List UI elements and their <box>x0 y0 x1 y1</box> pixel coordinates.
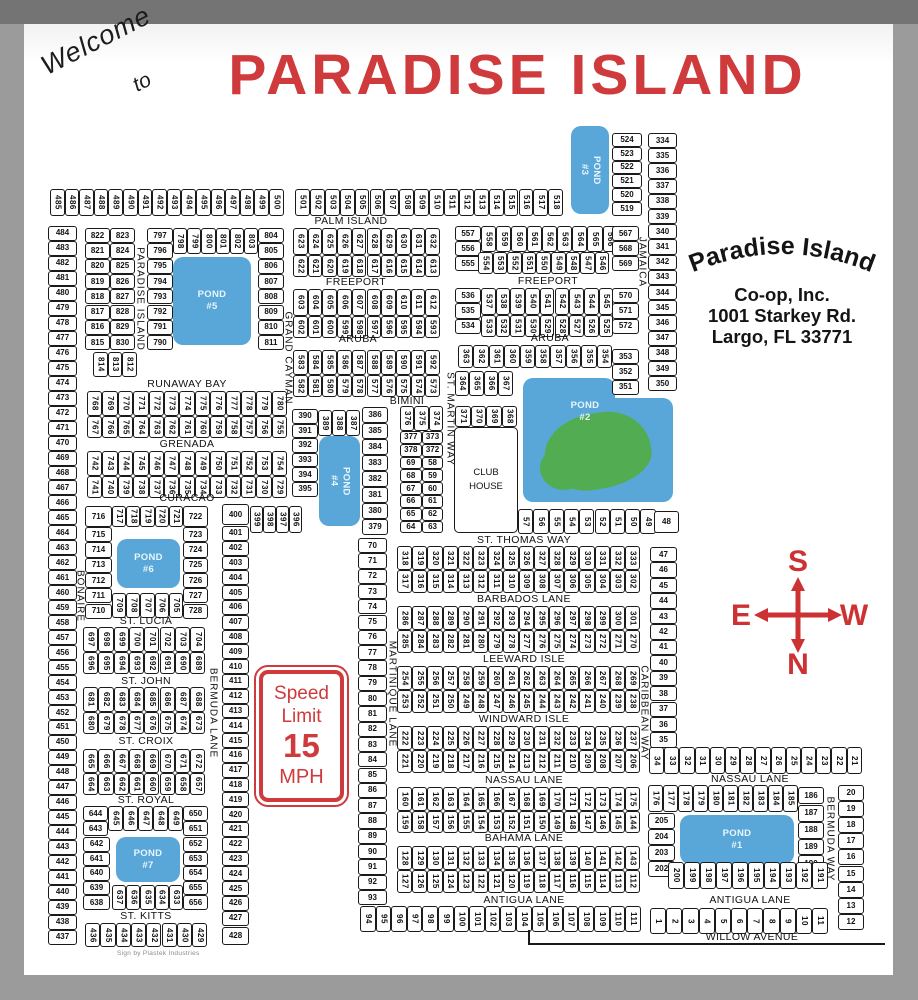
lot-320: 320 <box>427 546 442 570</box>
lot-74: 74 <box>358 599 387 614</box>
lot-292: 292 <box>488 606 503 630</box>
lot-322: 322 <box>458 546 473 570</box>
lot-50: 50 <box>625 509 640 534</box>
lot-125: 125 <box>427 870 442 893</box>
lot-282: 282 <box>443 630 458 653</box>
lot-294: 294 <box>519 606 534 630</box>
lot-690: 690 <box>175 652 190 674</box>
lot-603: 603 <box>293 289 308 316</box>
lot-524: 524 <box>612 133 642 147</box>
lot-174: 174 <box>610 787 625 811</box>
lot-106: 106 <box>547 906 563 932</box>
lot-467: 467 <box>48 480 77 495</box>
lot-799: 799 <box>187 228 201 254</box>
lot-663: 663 <box>98 773 113 795</box>
lot-456: 456 <box>48 645 77 660</box>
lot-673: 673 <box>190 712 205 734</box>
lot-631: 631 <box>411 228 426 255</box>
lot-373: 373 <box>422 431 444 444</box>
lot-739: 739 <box>118 476 133 498</box>
lot-11: 11 <box>812 908 828 934</box>
lot-634: 634 <box>155 885 169 910</box>
lot-447: 447 <box>48 780 77 795</box>
lot-794: 794 <box>147 274 173 289</box>
lot-398: 398 <box>263 506 276 533</box>
lot-43: 43 <box>650 609 677 624</box>
lot-102: 102 <box>485 906 501 932</box>
address-arch-title: Paradise Island <box>672 228 892 284</box>
lot-14: 14 <box>838 882 864 898</box>
lot-246: 246 <box>503 690 518 713</box>
lot-726: 726 <box>183 573 208 588</box>
lot-698: 698 <box>98 627 113 652</box>
compass-label-south: S <box>788 545 808 578</box>
lot-532: 532 <box>496 315 511 337</box>
lot-105: 105 <box>532 906 548 932</box>
lot-258: 258 <box>458 666 473 690</box>
lot-655: 655 <box>183 881 208 896</box>
street-label-st-kitts: ST. KITTS <box>120 910 171 922</box>
lot-428: 428 <box>222 927 249 945</box>
lot-83: 83 <box>358 737 387 752</box>
lot-110: 110 <box>610 906 626 932</box>
lot-458: 458 <box>48 615 77 630</box>
lot-42: 42 <box>650 624 677 639</box>
lot-560: 560 <box>511 226 526 252</box>
lot-219: 219 <box>427 750 442 773</box>
lot-367: 367 <box>498 371 512 396</box>
lot-702: 702 <box>160 627 175 652</box>
lot-160: 160 <box>397 787 412 811</box>
compass-arrow-up <box>791 577 805 591</box>
lot-459: 459 <box>48 600 77 615</box>
lot-71: 71 <box>358 553 387 568</box>
lot-688: 688 <box>190 687 205 712</box>
lot-755: 755 <box>272 416 287 438</box>
lot-444: 444 <box>48 825 77 840</box>
lot-30: 30 <box>710 747 725 774</box>
lot-542: 542 <box>555 288 570 315</box>
lot-247: 247 <box>488 690 503 713</box>
lot-118: 118 <box>534 870 549 893</box>
lot-412: 412 <box>222 689 249 704</box>
lot-167: 167 <box>503 787 518 811</box>
lot-156: 156 <box>443 811 458 833</box>
street-label-paradise-island: PARADISE ISLAND <box>135 247 146 351</box>
lot-331: 331 <box>595 546 610 570</box>
lot-143: 143 <box>625 846 640 870</box>
lot-448: 448 <box>48 765 77 780</box>
lot-747: 747 <box>164 451 179 476</box>
lot-576: 576 <box>381 375 396 397</box>
lot-429: 429 <box>192 923 207 947</box>
lot-108: 108 <box>578 906 594 932</box>
lot-313: 313 <box>458 570 473 593</box>
lot-98: 98 <box>422 906 438 932</box>
lot-426: 426 <box>222 896 249 911</box>
lot-506: 506 <box>370 189 385 216</box>
street-label-aruba: ARUBA <box>531 332 569 344</box>
lot-405: 405 <box>222 585 249 600</box>
lot-534: 534 <box>455 319 481 334</box>
lot-721: 721 <box>169 506 183 527</box>
lot-410: 410 <box>222 659 249 674</box>
compass-label-north: N <box>787 648 809 675</box>
lot-431: 431 <box>162 923 177 947</box>
lot-267: 267 <box>595 666 610 690</box>
lot-625: 625 <box>322 228 337 255</box>
lot-153: 153 <box>488 811 503 833</box>
lot-489: 489 <box>108 189 123 216</box>
lot-602: 602 <box>293 316 308 338</box>
lot-44: 44 <box>650 593 677 608</box>
lot-272: 272 <box>595 630 610 653</box>
lot-406: 406 <box>222 600 249 615</box>
lot-628: 628 <box>367 228 382 255</box>
lot-653: 653 <box>183 852 208 867</box>
lot-744: 744 <box>118 451 133 476</box>
street-label-bahama-lane: BAHAMA LANE <box>485 832 564 844</box>
lot-332: 332 <box>610 546 625 570</box>
lot-136: 136 <box>519 846 534 870</box>
lot-290: 290 <box>458 606 473 630</box>
lot-464: 464 <box>48 525 77 540</box>
lot-266: 266 <box>579 666 594 690</box>
lot-88: 88 <box>358 813 387 828</box>
lot-222: 222 <box>397 726 412 750</box>
lot-286: 286 <box>397 606 412 630</box>
lot-328: 328 <box>549 546 564 570</box>
lot-3: 3 <box>682 908 698 934</box>
lot-554: 554 <box>478 252 493 274</box>
lot-474: 474 <box>48 376 77 391</box>
lot-70: 70 <box>358 538 387 553</box>
lot-225: 225 <box>443 726 458 750</box>
lot-259: 259 <box>473 666 488 690</box>
lot-387: 387 <box>346 410 360 436</box>
lot-644: 644 <box>83 806 108 821</box>
street-label-bermuda-way: BERMUDA WAY <box>825 797 836 882</box>
lot-759: 759 <box>210 416 225 438</box>
lot-497: 497 <box>225 189 240 216</box>
lot-751: 751 <box>226 451 241 476</box>
speed-sign-word1: Speed <box>274 682 329 705</box>
lot-520: 520 <box>612 188 642 202</box>
lot-446: 446 <box>48 795 77 810</box>
speed-sign-value: 15 <box>283 728 320 764</box>
lot-475: 475 <box>48 361 77 376</box>
lot-250: 250 <box>443 690 458 713</box>
lot-623: 623 <box>293 228 308 255</box>
lot-63: 63 <box>422 521 444 534</box>
lot-821: 821 <box>85 243 110 258</box>
lot-718: 718 <box>126 506 140 527</box>
lot-154: 154 <box>473 811 488 833</box>
lot-670: 670 <box>160 749 175 773</box>
lot-501: 501 <box>295 189 310 216</box>
lot-192: 192 <box>796 862 812 889</box>
lot-300: 300 <box>610 606 625 630</box>
lot-632: 632 <box>425 228 440 255</box>
street-label-antigua-lane: ANTIGUA LANE <box>483 894 564 906</box>
lot-109: 109 <box>594 906 610 932</box>
address-line1: Paradise Island <box>685 232 879 278</box>
lot-113: 113 <box>610 870 625 893</box>
street-label-antigua-lane: ANTIGUA LANE <box>709 894 790 906</box>
lot-224: 224 <box>427 726 442 750</box>
lot-354: 354 <box>597 345 612 368</box>
lot-392: 392 <box>292 438 318 453</box>
lot-291: 291 <box>473 606 488 630</box>
lot-184: 184 <box>768 785 783 812</box>
lot-68: 68 <box>400 469 422 482</box>
lot-22: 22 <box>831 747 846 774</box>
lot-499: 499 <box>254 189 269 216</box>
lot-791: 791 <box>147 320 173 335</box>
lot-232: 232 <box>549 726 564 750</box>
lot-152: 152 <box>503 811 518 833</box>
lot-557: 557 <box>455 226 481 241</box>
lot-81: 81 <box>358 706 387 721</box>
lot-605: 605 <box>322 289 337 316</box>
lot-616: 616 <box>381 255 396 277</box>
lot-714: 714 <box>85 542 112 557</box>
lot-402: 402 <box>222 541 249 556</box>
lot-216: 216 <box>473 750 488 773</box>
lot-825: 825 <box>110 259 135 274</box>
lot-647: 647 <box>138 806 153 831</box>
lot-165: 165 <box>473 787 488 811</box>
lot-434: 434 <box>116 923 131 947</box>
lot-658: 658 <box>175 773 190 795</box>
lot-213: 213 <box>519 750 534 773</box>
lot-338: 338 <box>648 194 677 209</box>
lot-234: 234 <box>579 726 594 750</box>
lot-482: 482 <box>48 256 77 271</box>
lot-179: 179 <box>693 785 708 812</box>
lot-683: 683 <box>114 687 129 712</box>
lot-551: 551 <box>522 252 537 274</box>
lot-558: 558 <box>481 226 496 252</box>
lot-393: 393 <box>292 453 318 468</box>
lot-415: 415 <box>222 733 249 748</box>
lot-314: 314 <box>443 570 458 593</box>
lot-293: 293 <box>503 606 518 630</box>
lot-432: 432 <box>146 923 161 947</box>
lot-176: 176 <box>648 785 663 812</box>
lot-487: 487 <box>79 189 94 216</box>
lot-552: 552 <box>507 252 522 274</box>
lot-633: 633 <box>169 885 183 910</box>
lot-484: 484 <box>48 226 77 241</box>
lot-567: 567 <box>612 226 639 241</box>
lot-54: 54 <box>564 509 579 534</box>
lot-226: 226 <box>458 726 473 750</box>
lot-287: 287 <box>412 606 427 630</box>
lot-816: 816 <box>85 320 110 335</box>
lot-654: 654 <box>183 866 208 881</box>
lot-492: 492 <box>152 189 167 216</box>
lot-619: 619 <box>337 255 352 277</box>
lot-315: 315 <box>427 570 442 593</box>
lot-145: 145 <box>610 811 625 833</box>
lot-409: 409 <box>222 644 249 659</box>
lot-665: 665 <box>83 749 98 773</box>
lot-166: 166 <box>488 787 503 811</box>
lot-307: 307 <box>549 570 564 593</box>
lot-32: 32 <box>679 747 694 774</box>
lot-148: 148 <box>564 811 579 833</box>
street-label-caribbean-way: CARIBBEAN WAY <box>639 665 650 760</box>
lot-580: 580 <box>322 375 337 397</box>
lot-407: 407 <box>222 615 249 630</box>
lot-17: 17 <box>838 833 864 849</box>
lot-614: 614 <box>411 255 426 277</box>
lot-12: 12 <box>838 914 864 930</box>
lot-76: 76 <box>358 630 387 645</box>
lot-577: 577 <box>367 375 382 397</box>
lot-175: 175 <box>625 787 640 811</box>
lot-764: 764 <box>133 416 148 438</box>
lot-480: 480 <box>48 286 77 301</box>
lot-87: 87 <box>358 798 387 813</box>
lot-414: 414 <box>222 718 249 733</box>
lot-771: 771 <box>133 391 148 416</box>
lot-813: 813 <box>108 352 123 377</box>
lot-800: 800 <box>201 228 215 254</box>
lot-115: 115 <box>579 870 594 893</box>
lot-550: 550 <box>536 252 551 274</box>
lot-413: 413 <box>222 704 249 719</box>
speed-limit-sign: Speed Limit 15 MPH <box>254 665 349 807</box>
lot-230: 230 <box>519 726 534 750</box>
lot-717: 717 <box>112 506 126 527</box>
lot-245: 245 <box>519 690 534 713</box>
lot-285: 285 <box>397 630 412 653</box>
lot-523: 523 <box>612 147 642 161</box>
lot-376: 376 <box>400 406 414 431</box>
lot-139: 139 <box>564 846 579 870</box>
lot-778: 778 <box>241 391 256 416</box>
lot-687: 687 <box>175 687 190 712</box>
lot-797: 797 <box>147 228 173 243</box>
lot-477: 477 <box>48 331 77 346</box>
lot-608: 608 <box>367 289 382 316</box>
lot-811: 811 <box>258 335 284 350</box>
compass-label-west: W <box>840 599 868 632</box>
lot-23: 23 <box>816 747 831 774</box>
lot-743: 743 <box>102 451 117 476</box>
lot-756: 756 <box>256 416 271 438</box>
lot-585: 585 <box>322 350 337 375</box>
lot-689: 689 <box>190 652 205 674</box>
lot-374: 374 <box>429 406 443 431</box>
lot-696: 696 <box>83 652 98 674</box>
lot-443: 443 <box>48 840 77 855</box>
pond-#4: POND#4 <box>319 436 360 526</box>
lot-319: 319 <box>412 546 427 570</box>
lot-240: 240 <box>595 690 610 713</box>
lot-311: 311 <box>488 570 503 593</box>
lot-549: 549 <box>551 252 566 274</box>
lot-773: 773 <box>164 391 179 416</box>
lot-766: 766 <box>102 416 117 438</box>
lot-494: 494 <box>181 189 196 216</box>
lot-289: 289 <box>443 606 458 630</box>
lot-116: 116 <box>564 870 579 893</box>
lot-692: 692 <box>144 652 159 674</box>
lot-503: 503 <box>325 189 340 216</box>
lot-260: 260 <box>488 666 503 690</box>
lot-209: 209 <box>579 750 594 773</box>
lot-531: 531 <box>510 315 525 337</box>
lot-305: 305 <box>579 570 594 593</box>
lot-451: 451 <box>48 720 77 735</box>
lot-704: 704 <box>190 627 205 652</box>
speed-sign-unit: MPH <box>279 764 323 790</box>
lot-538: 538 <box>496 288 511 315</box>
lot-659: 659 <box>160 773 175 795</box>
lot-596: 596 <box>381 316 396 338</box>
lot-364: 364 <box>455 371 469 396</box>
lot-548: 548 <box>566 252 581 274</box>
lot-120: 120 <box>503 870 518 893</box>
lot-438: 438 <box>48 915 77 930</box>
lot-121: 121 <box>488 870 503 893</box>
lot-119: 119 <box>519 870 534 893</box>
lot-171: 171 <box>564 787 579 811</box>
lot-403: 403 <box>222 556 249 571</box>
lot-252: 252 <box>412 690 427 713</box>
lot-488: 488 <box>94 189 109 216</box>
lot-553: 553 <box>493 252 508 274</box>
lot-187: 187 <box>798 805 824 822</box>
lot-90: 90 <box>358 844 387 859</box>
pond-#6: POND#6 <box>117 539 180 588</box>
lot-401: 401 <box>222 526 249 541</box>
lot-257: 257 <box>443 666 458 690</box>
lot-299: 299 <box>595 606 610 630</box>
lot-336: 336 <box>648 163 677 178</box>
lot-129: 129 <box>412 846 427 870</box>
lot-377: 377 <box>400 431 422 444</box>
lot-691: 691 <box>160 652 175 674</box>
lot-381: 381 <box>362 487 388 503</box>
lot-93: 93 <box>358 890 387 905</box>
lot-617: 617 <box>367 255 382 277</box>
lot-710: 710 <box>85 604 112 619</box>
lot-433: 433 <box>131 923 146 947</box>
lot-404: 404 <box>222 570 249 585</box>
lot-792: 792 <box>147 305 173 320</box>
lot-79: 79 <box>358 676 387 691</box>
street-label-leeward-isle: LEEWARD ISLE <box>483 653 565 665</box>
lot-715: 715 <box>85 527 112 542</box>
lot-516: 516 <box>519 189 534 216</box>
lot-169: 169 <box>534 787 549 811</box>
lot-466: 466 <box>48 495 77 510</box>
lot-442: 442 <box>48 855 77 870</box>
lot-353: 353 <box>612 349 639 364</box>
lot-249: 249 <box>458 690 473 713</box>
lot-97: 97 <box>407 906 423 932</box>
lot-89: 89 <box>358 829 387 844</box>
lot-677: 677 <box>129 712 144 734</box>
map-boundary-line <box>528 943 885 945</box>
lot-512: 512 <box>459 189 474 216</box>
lot-296: 296 <box>549 606 564 630</box>
lot-546: 546 <box>595 252 610 274</box>
